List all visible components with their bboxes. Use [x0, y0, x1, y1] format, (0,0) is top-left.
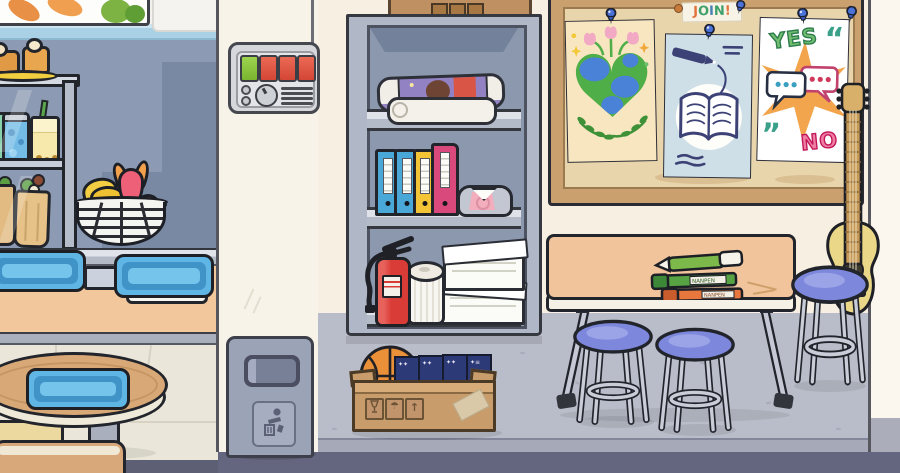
umbrella-icon: ☂	[385, 398, 404, 420]
spine-stars: ✦✦	[446, 359, 456, 366]
quote-open: “	[824, 22, 845, 57]
white-wall-panel	[152, 0, 218, 32]
panel-wire	[311, 0, 314, 48]
binder-pink[interactable]	[431, 143, 459, 216]
tray-center	[40, 382, 116, 396]
stool[interactable]	[654, 326, 736, 434]
indicator-dot	[241, 96, 251, 106]
floor-speckle	[332, 428, 337, 430]
orange-pin-icon[interactable]	[674, 4, 683, 13]
svg-text:NANPEN: NANPEN	[704, 292, 725, 298]
bench[interactable]	[0, 440, 126, 473]
marker-group[interactable]: NANPEN NANPEN	[648, 248, 778, 300]
bowl-stripe-v	[140, 202, 154, 245]
lunch-tray[interactable]	[114, 254, 214, 298]
rolled-mat[interactable]	[387, 97, 497, 125]
red-button[interactable]	[259, 55, 278, 82]
open-book-poster[interactable]	[663, 33, 753, 178]
extinguisher-hose	[351, 227, 415, 327]
join-letter: N	[714, 4, 725, 19]
control-panel[interactable]	[228, 42, 320, 114]
striped-bowl[interactable]	[76, 202, 166, 246]
binder-label	[383, 158, 393, 194]
spine-stars: ✦✦	[398, 361, 408, 368]
fruit-basket-group[interactable]	[76, 160, 166, 248]
indicator-dot	[241, 85, 251, 95]
tray-center	[2, 264, 72, 278]
paper-edge-line	[450, 305, 516, 307]
yellow-plate[interactable]	[0, 70, 58, 82]
binder-label	[402, 158, 412, 194]
binder-hole	[404, 201, 409, 206]
lunch-tray[interactable]	[0, 250, 86, 292]
vent-line	[281, 97, 313, 100]
poster-sparkle	[410, 83, 414, 87]
binder-hole	[385, 201, 390, 206]
muffin-plate-group[interactable]	[0, 40, 64, 84]
red-button[interactable]	[278, 55, 297, 82]
open-book-art	[664, 34, 754, 179]
stool[interactable]	[790, 264, 870, 386]
bowl-stripe-v	[90, 202, 104, 245]
slot-highlight	[248, 359, 256, 383]
join-letter: !	[725, 4, 731, 19]
stool[interactable]	[572, 318, 654, 426]
orange-marker[interactable]: NANPEN	[662, 288, 742, 300]
vegetable-picture[interactable]	[0, 0, 150, 26]
cardboard-floor-box[interactable]: ☂ ↑	[352, 380, 496, 432]
paper-stack[interactable]	[441, 285, 525, 325]
wrap-crease	[36, 203, 39, 241]
trash-sign	[252, 401, 296, 447]
tile-line	[130, 421, 218, 423]
wrap-crease	[24, 201, 27, 241]
baseboard	[218, 452, 900, 473]
floor-speckle	[836, 428, 841, 430]
binder-label	[420, 158, 430, 194]
vent-line	[281, 102, 313, 105]
picture-carrot	[5, 0, 43, 26]
interior-top-shadow	[370, 28, 518, 52]
litter-person-icon	[260, 406, 288, 438]
green-button[interactable]	[240, 55, 259, 82]
red-button[interactable]	[297, 55, 316, 82]
spine-stars: ✦≡	[470, 359, 480, 366]
tea-foam	[33, 119, 60, 133]
can-pattern	[18, 139, 24, 145]
floor-step-band	[315, 438, 868, 452]
display-case-post	[62, 80, 77, 250]
picture-greens	[125, 5, 145, 23]
binder-hole	[443, 201, 448, 206]
spine-stars: ✦✦	[422, 360, 432, 367]
pushpin-icon[interactable]	[701, 23, 717, 42]
vent-line	[281, 87, 313, 90]
supply-cabinet[interactable]	[346, 14, 542, 336]
pushpin-icon[interactable]	[843, 5, 860, 24]
pushpin-icon[interactable]	[795, 7, 811, 25]
svg-text:NANPEN: NANPEN	[692, 278, 715, 285]
paper-edge-line	[452, 270, 516, 272]
trash-can[interactable]	[226, 336, 314, 458]
this-side-up-icon: ↑	[405, 398, 424, 420]
gray-box[interactable]	[84, 266, 118, 290]
green-marker[interactable]: NANPEN	[652, 272, 736, 289]
mat-end	[392, 102, 408, 118]
earth-heart-art	[566, 20, 659, 164]
binder-label	[440, 152, 450, 188]
binder-hole	[423, 201, 428, 206]
yes-text: YES	[769, 24, 819, 54]
vent-line	[281, 92, 313, 95]
fragile-glass-icon	[365, 398, 384, 420]
trash-slot[interactable]	[244, 355, 300, 387]
floor-speckle	[520, 352, 525, 354]
muffin-top	[26, 38, 43, 53]
lunch-tray[interactable]	[26, 368, 130, 410]
counter-front-bar	[0, 332, 218, 345]
bowl-stripe-v	[120, 202, 123, 246]
game-scene: YES “ „ NO JOIN!	[0, 0, 900, 473]
towel-core-hole	[419, 267, 430, 272]
picture-carrot	[45, 0, 85, 20]
paper-stack[interactable]	[443, 249, 525, 291]
knob-notch	[262, 88, 268, 95]
right-strip-floor	[871, 418, 900, 452]
panel-knob[interactable]	[255, 84, 278, 107]
folded-shirt[interactable]	[457, 185, 513, 217]
pushpin-icon[interactable]	[604, 8, 618, 25]
cabinet-shadow	[346, 336, 542, 344]
green-pen[interactable]	[656, 251, 743, 272]
join-letter: O	[698, 4, 709, 19]
tray-center	[128, 268, 200, 284]
bench-top-band	[0, 446, 120, 455]
earth-heart-poster[interactable]	[565, 19, 658, 163]
